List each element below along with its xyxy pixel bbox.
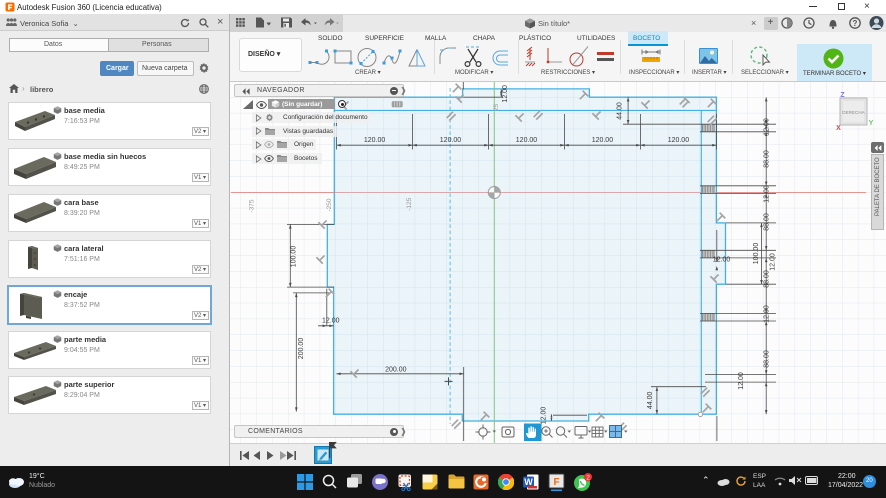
svg-text:44.00: 44.00 [617, 102, 624, 120]
svg-text:12.00: 12.00 [764, 185, 771, 203]
svg-text:88.00: 88.00 [764, 213, 771, 231]
svg-text:12.00: 12.00 [764, 305, 771, 323]
svg-text:200.00: 200.00 [298, 338, 305, 360]
svg-text:100.00: 100.00 [753, 243, 760, 265]
svg-text:X: X [836, 125, 841, 132]
svg-text:100.00: 100.00 [290, 246, 297, 268]
svg-text:88.00: 88.00 [764, 150, 771, 168]
svg-text:?: ? [853, 19, 858, 28]
svg-text:Y: Y [869, 120, 874, 127]
svg-text:12.00: 12.00 [770, 253, 777, 271]
svg-text:-125: -125 [406, 197, 413, 210]
svg-text:12.00: 12.00 [322, 318, 340, 325]
svg-text:88.00: 88.00 [764, 270, 771, 288]
svg-text:12.00: 12.00 [713, 257, 731, 264]
svg-text:88.00: 88.00 [764, 350, 771, 368]
svg-text:Z: Z [840, 92, 845, 99]
svg-text:F: F [553, 477, 559, 488]
svg-text:120.00: 120.00 [516, 137, 538, 144]
svg-text:120.00: 120.00 [440, 137, 462, 144]
svg-text:-375: -375 [249, 199, 256, 212]
svg-text:12.00: 12.00 [502, 85, 509, 103]
svg-text:W: W [524, 477, 533, 487]
svg-text:-250: -250 [326, 198, 333, 211]
svg-text:120.00: 120.00 [364, 137, 386, 144]
svg-text:44.00: 44.00 [647, 391, 654, 409]
svg-text:2: 2 [586, 475, 590, 482]
svg-text:120.00: 120.00 [668, 137, 690, 144]
svg-text:120.00: 120.00 [592, 137, 614, 144]
svg-text:12.00: 12.00 [738, 372, 745, 390]
svg-text:200.00: 200.00 [385, 366, 407, 373]
svg-text:25: 25 [493, 104, 500, 112]
svg-text:DERECHA: DERECHA [842, 110, 865, 115]
svg-text:12.00: 12.00 [764, 118, 771, 136]
